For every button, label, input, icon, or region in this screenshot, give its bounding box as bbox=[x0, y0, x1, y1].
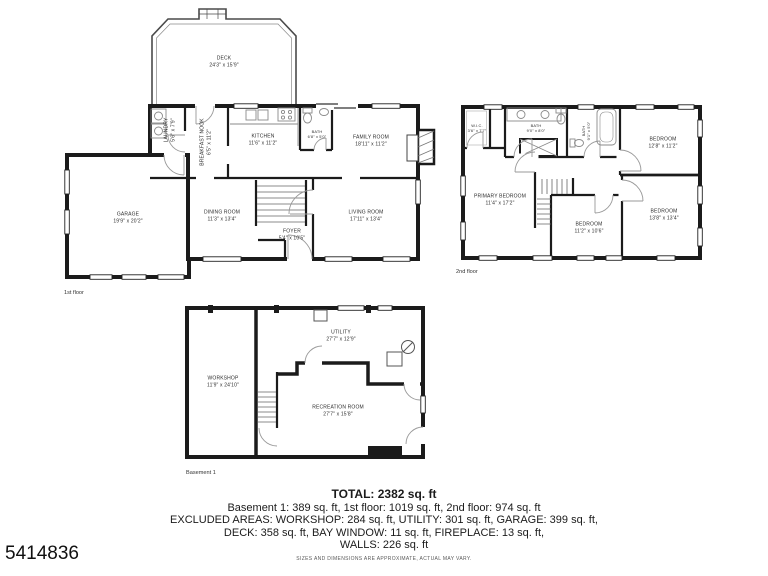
basement-door-opening bbox=[420, 427, 427, 444]
excluded-areas-line-2: DECK: 358 sq. ft, BAY WINDOW: 11 sq. ft,… bbox=[0, 527, 768, 539]
room-label-bath-first: BATH 6'8" x 5'0" bbox=[308, 129, 327, 139]
room-label-workshop: WORKSHOP 11'9" x 24'10" bbox=[207, 375, 239, 388]
room-label-bedroom-bottom-right: BEDROOM 13'8" x 13'4" bbox=[649, 208, 678, 221]
room-label-bedroom-top-right: BEDROOM 12'8" x 11'2" bbox=[648, 136, 677, 149]
room-label-garage: GARAGE 19'9" x 20'2" bbox=[113, 211, 142, 224]
room-label-dining-room: DINING ROOM 11'3" x 13'4" bbox=[204, 209, 240, 222]
room-label-living-room: LIVING ROOM 17'11" x 13'4" bbox=[349, 209, 384, 222]
floorplan-page: DECK 24'3" x 15'9" LAUNDRY 5'6" x 7'9" B… bbox=[0, 0, 768, 576]
room-label-kitchen: KITCHEN 11'6" x 11'2" bbox=[249, 133, 278, 146]
room-label-laundry: LAUNDRY 5'6" x 7'9" bbox=[163, 118, 176, 143]
room-label-recreation-room: RECREATION ROOM 27'7" x 15'8" bbox=[312, 404, 364, 417]
room-label-family-room: FAMILY ROOM 18'11" x 11'2" bbox=[353, 134, 389, 147]
disclaimer: SIZES AND DIMENSIONS ARE APPROXIMATE, AC… bbox=[0, 556, 768, 562]
room-label-wic: W.I.C. 3'6" x 7'7" bbox=[468, 123, 487, 133]
excluded-areas-line-1: EXCLUDED AREAS: WORKSHOP: 284 sq. ft, UT… bbox=[0, 514, 768, 526]
area-summary: TOTAL: 2382 sq. ft Basement 1: 389 sq. f… bbox=[0, 488, 768, 562]
listing-id: 5414836 bbox=[5, 543, 79, 565]
room-label-utility: UTILITY 27'7" x 12'9" bbox=[326, 329, 355, 342]
room-label-bath1-second: BATH 9'0" x 8'0" bbox=[527, 123, 546, 133]
room-label-bath2-second: BATH 9'1" x 5'0" bbox=[581, 122, 591, 141]
floor-areas-line: Basement 1: 389 sq. ft, 1st floor: 1019 … bbox=[0, 502, 768, 514]
room-label-deck: DECK 24'3" x 15'9" bbox=[209, 55, 238, 68]
room-label-foyer: FOYER 5'4" x 10'5" bbox=[279, 228, 305, 241]
basement-fireplace bbox=[368, 446, 402, 457]
room-label-breakfast-nook: BREAKFAST NOOK 6'5" x 11'2" bbox=[199, 118, 212, 166]
caption-first-floor: 1st floor bbox=[64, 290, 84, 296]
walls-area-line: WALLS: 226 sq. ft bbox=[0, 539, 768, 551]
caption-basement: Basement 1 bbox=[186, 470, 216, 476]
total-area: TOTAL: 2382 sq. ft bbox=[0, 488, 768, 501]
fireplace bbox=[407, 130, 434, 164]
caption-second-floor: 2nd floor bbox=[456, 269, 478, 275]
room-label-bedroom-bottom-middle: BEDROOM 11'2" x 10'6" bbox=[574, 221, 603, 234]
room-label-primary-bedroom: PRIMARY BEDROOM 11'4" x 17'2" bbox=[474, 193, 526, 206]
